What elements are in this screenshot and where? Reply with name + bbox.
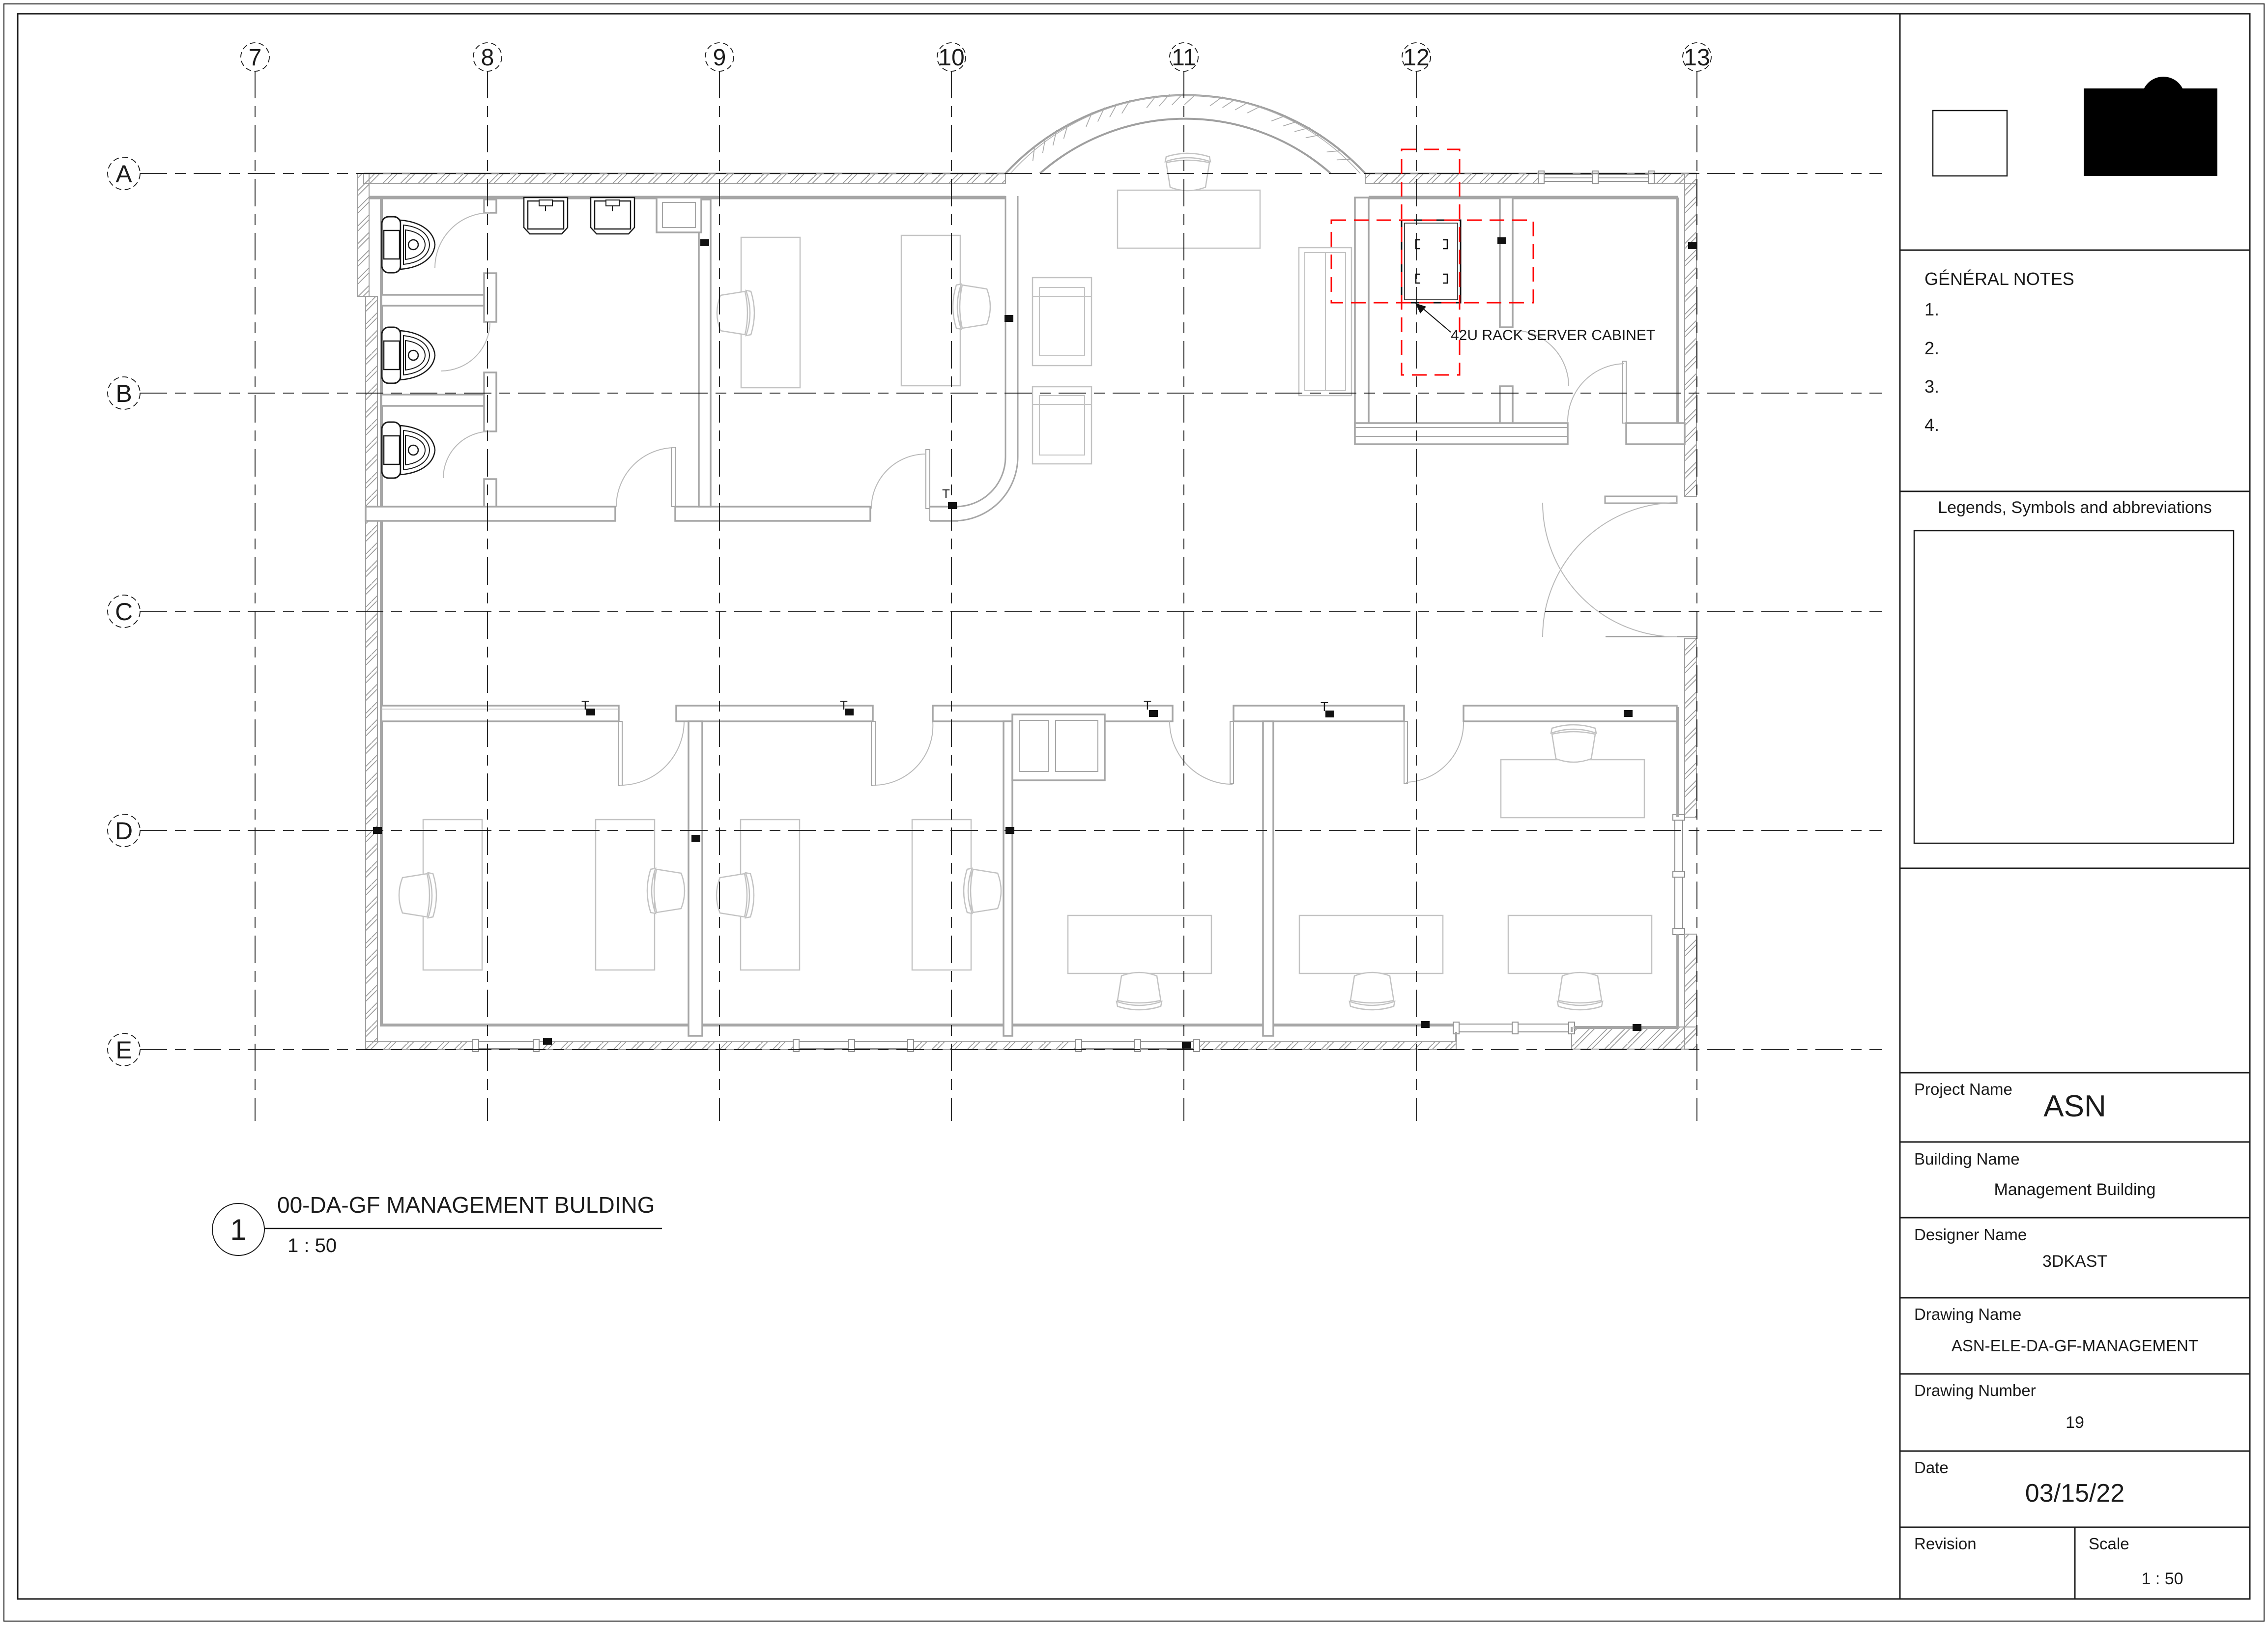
svg-text:42U RACK SERVER CABINET: 42U RACK SERVER CABINET [1451,327,1655,343]
svg-text:T: T [840,698,848,713]
svg-text:Legends, Symbols and abbreviat: Legends, Symbols and abbreviations [1938,498,2212,517]
svg-text:Scale: Scale [2089,1535,2129,1553]
svg-text:2.: 2. [1924,338,1939,358]
svg-text:Management Building: Management Building [1994,1180,2156,1199]
svg-text:Drawing Name: Drawing Name [1914,1305,2021,1323]
svg-text:A: A [115,160,132,188]
svg-text:3.: 3. [1924,376,1939,397]
svg-text:7: 7 [249,45,262,71]
svg-text:4.: 4. [1924,415,1939,435]
svg-text:E: E [115,1036,132,1064]
svg-text:Project Name: Project Name [1914,1080,2012,1098]
svg-text:00-DA-GF MANAGEMENT BULDING: 00-DA-GF MANAGEMENT BULDING [277,1192,655,1218]
svg-text:10: 10 [938,45,964,71]
svg-text:1 : 50: 1 : 50 [287,1235,337,1256]
svg-text:ASN-ELE-DA-GF-MANAGEMENT: ASN-ELE-DA-GF-MANAGEMENT [1952,1337,2198,1355]
svg-text:12: 12 [1403,45,1429,71]
svg-text:T: T [581,698,589,713]
svg-text:1.: 1. [1924,299,1939,319]
svg-text:9: 9 [713,45,726,71]
svg-text:D: D [115,817,133,845]
svg-text:T: T [1321,699,1328,714]
svg-text:T: T [942,486,950,501]
svg-text:GÉNÉRAL NOTES: GÉNÉRAL NOTES [1924,269,2074,289]
svg-text:Drawing Number: Drawing Number [1914,1381,2036,1399]
svg-text:3DKAST: 3DKAST [2042,1252,2107,1271]
svg-text:1 : 50: 1 : 50 [2141,1569,2183,1588]
svg-text:T: T [1144,698,1151,713]
svg-text:Date: Date [1914,1458,1949,1477]
svg-text:Revision: Revision [1914,1535,1977,1553]
svg-text:B: B [115,380,132,407]
svg-text:8: 8 [481,45,494,71]
svg-text:13: 13 [1684,45,1710,71]
svg-text:Designer Name: Designer Name [1914,1226,2027,1244]
svg-text:Building Name: Building Name [1914,1150,2020,1168]
svg-text:C: C [115,598,133,626]
svg-text:11: 11 [1172,45,1196,71]
svg-text:ASN: ASN [2043,1089,2106,1123]
svg-text:03/15/22: 03/15/22 [2025,1479,2124,1508]
svg-text:19: 19 [2066,1413,2084,1432]
svg-text:1: 1 [230,1213,246,1246]
